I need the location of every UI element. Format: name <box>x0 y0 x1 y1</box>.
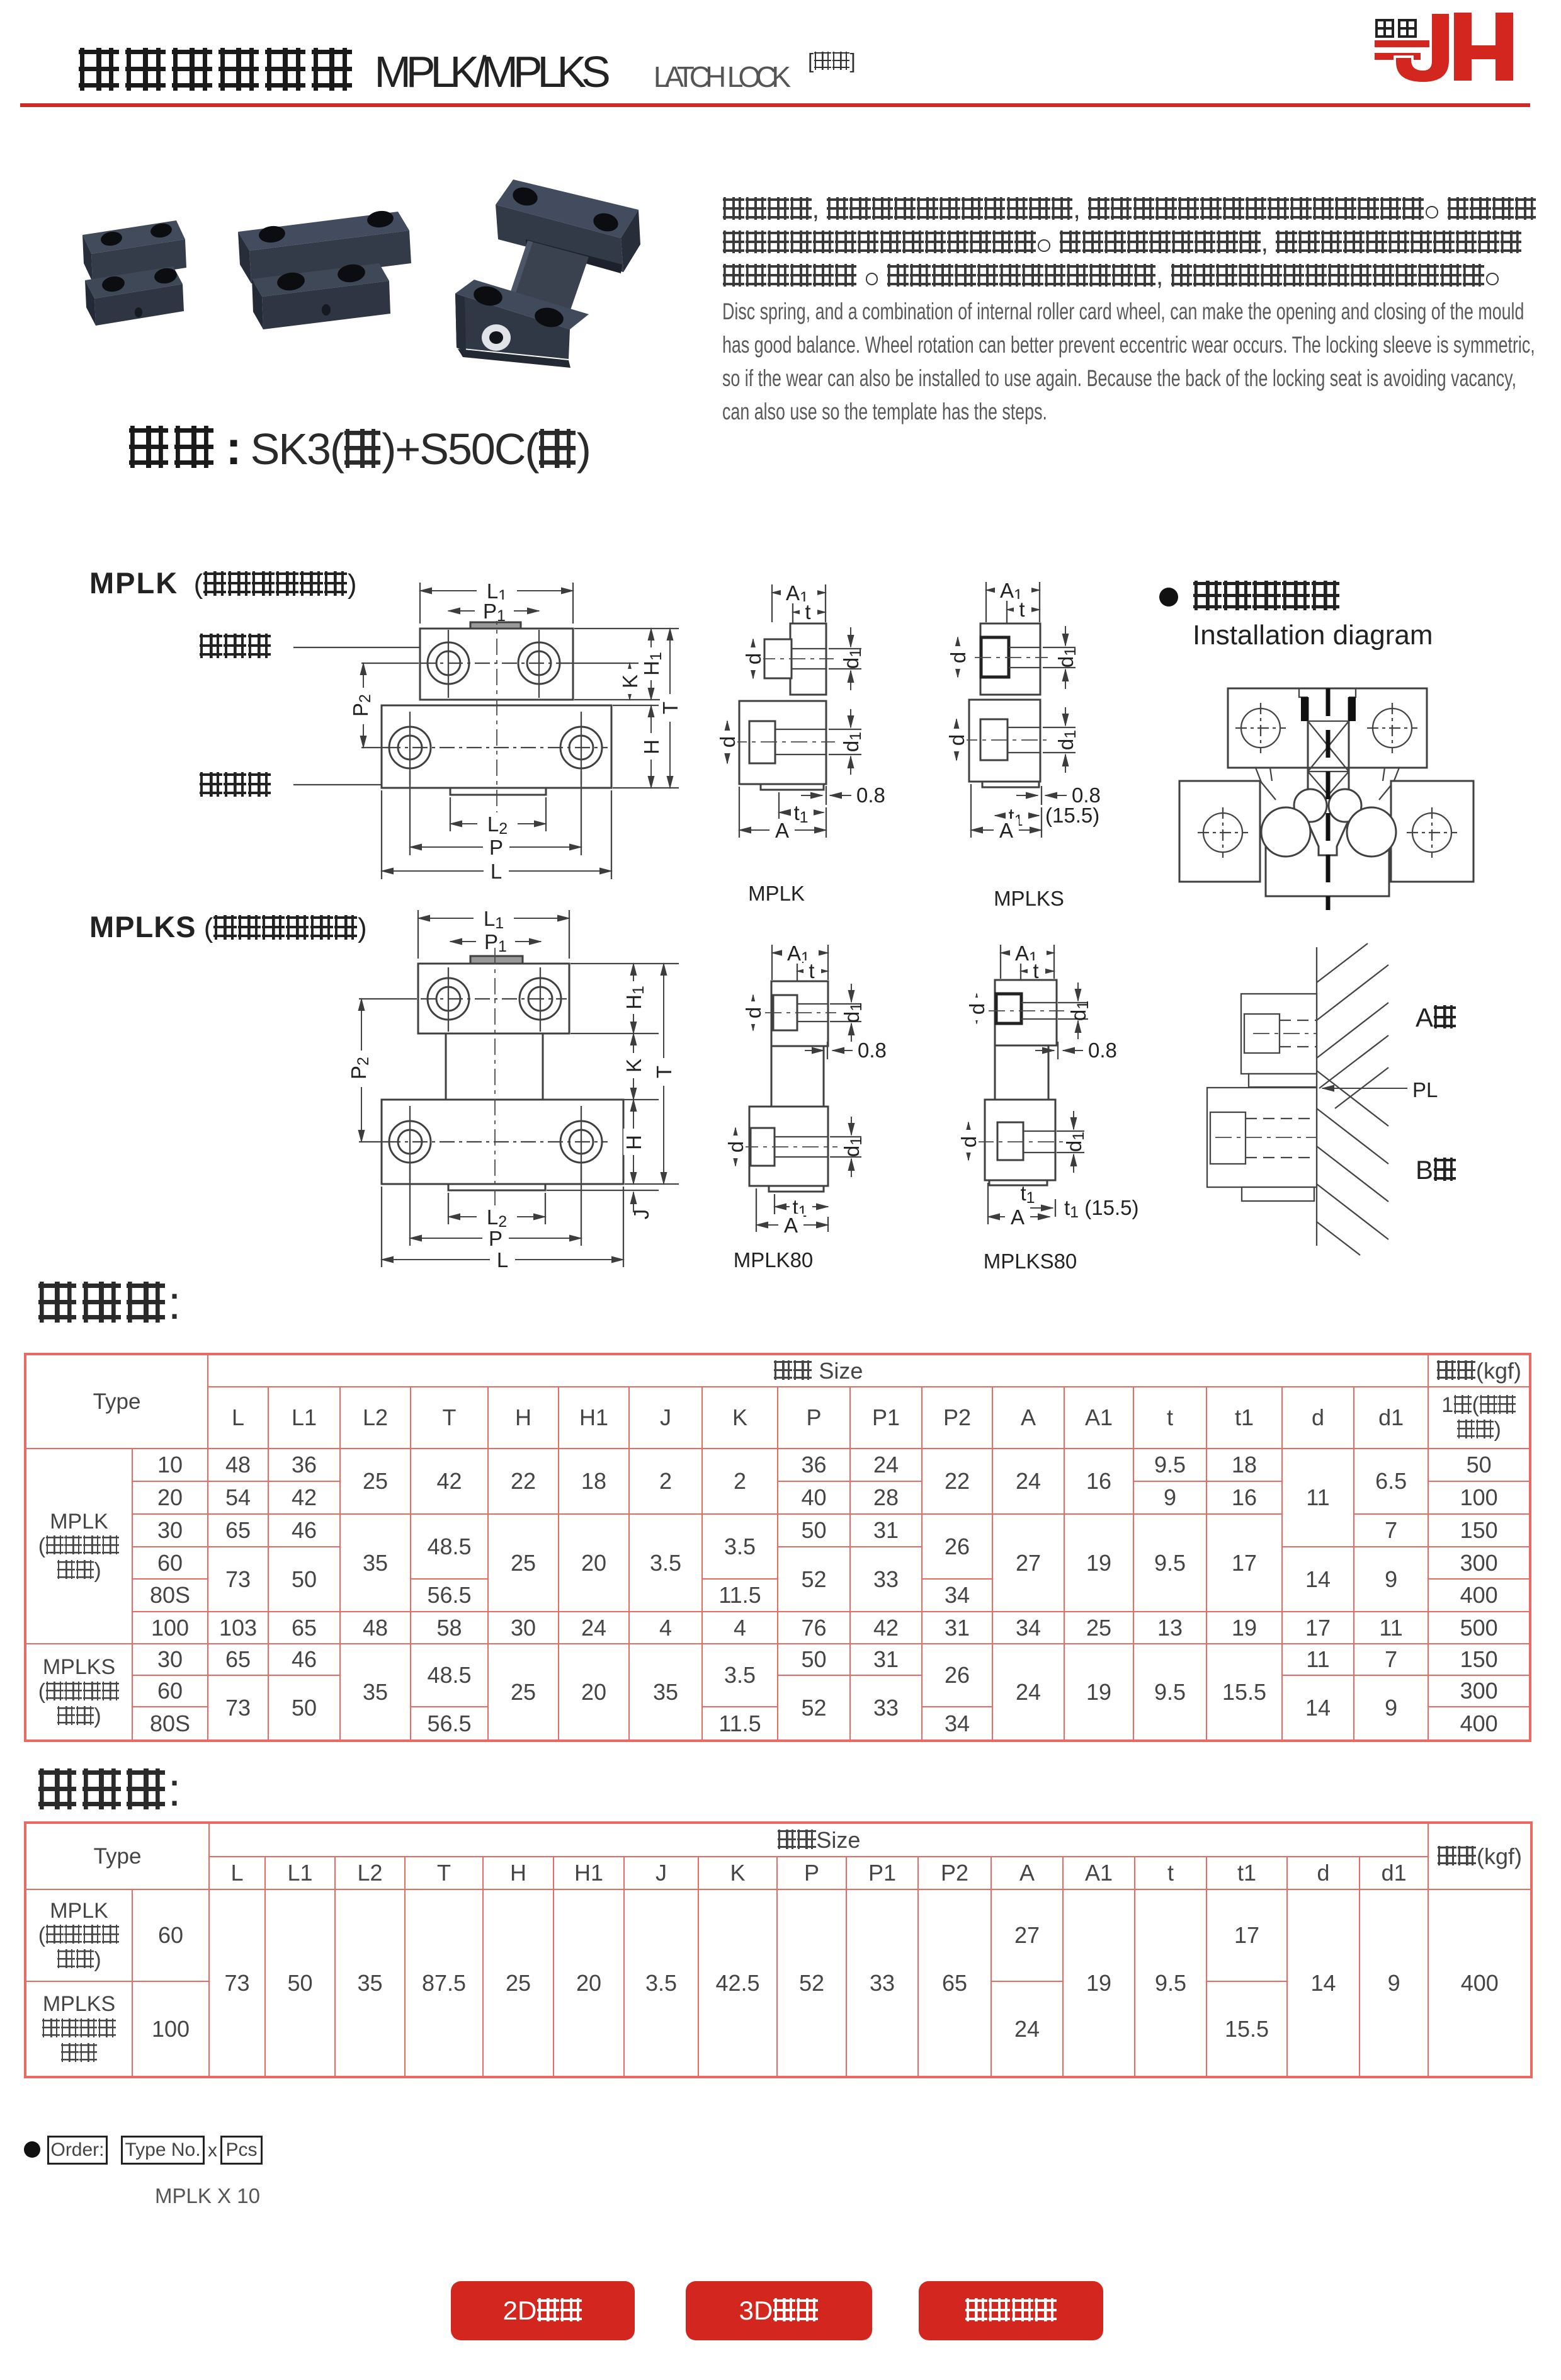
svg-text:d: d <box>716 736 739 748</box>
svg-text:P: P <box>489 1227 502 1250</box>
svg-text:0.8: 0.8 <box>856 783 885 807</box>
svg-text:A: A <box>775 819 789 842</box>
svg-text:T: T <box>659 702 682 714</box>
svg-text:P: P <box>489 836 503 859</box>
svg-text:PL: PL <box>1412 1078 1438 1102</box>
svg-text:MPLK: MPLK <box>748 882 805 905</box>
svg-text:d: d <box>724 1141 747 1153</box>
svg-text:MPLKS80: MPLKS80 <box>984 1250 1077 1273</box>
svg-text:MPLK80: MPLK80 <box>734 1248 814 1272</box>
svg-text:K: K <box>618 675 642 688</box>
svg-text:t: t <box>809 959 814 982</box>
svg-text:d: d <box>742 653 765 664</box>
svg-text:t1 (15.5): t1 (15.5) <box>1064 1196 1138 1221</box>
svg-text:t: t <box>1033 959 1038 982</box>
svg-text:d1: d1 <box>1054 730 1079 750</box>
svg-text:t: t <box>1019 598 1025 621</box>
svg-text:t: t <box>805 600 810 623</box>
svg-text:A: A <box>999 819 1013 842</box>
svg-text:d1: d1 <box>840 1137 865 1157</box>
svg-text:d1: d1 <box>1067 1001 1092 1021</box>
svg-text:d: d <box>957 1136 980 1147</box>
svg-text:T: T <box>652 1066 676 1078</box>
svg-text:MPLKS: MPLKS <box>994 887 1064 910</box>
svg-text:d: d <box>946 652 970 663</box>
svg-text:(15.5): (15.5) <box>1045 804 1099 827</box>
svg-text:d1: d1 <box>840 1003 865 1023</box>
svg-text:d: d <box>742 1007 765 1018</box>
svg-text:d: d <box>965 1003 989 1015</box>
svg-text:d1: d1 <box>1062 1132 1087 1152</box>
svg-text:A: A <box>784 1214 798 1237</box>
svg-text:K: K <box>622 1059 645 1073</box>
svg-text:d1: d1 <box>1054 647 1079 668</box>
svg-text:d1: d1 <box>839 649 865 669</box>
svg-text:H: H <box>622 1135 645 1150</box>
svg-text:H: H <box>640 739 663 754</box>
svg-text:A: A <box>1011 1205 1025 1229</box>
svg-text:d1: d1 <box>839 732 865 752</box>
svg-text:0.8: 0.8 <box>1088 1039 1117 1062</box>
svg-text:J: J <box>630 1209 653 1220</box>
svg-text:L: L <box>491 860 502 883</box>
svg-text:0.8: 0.8 <box>858 1039 887 1062</box>
svg-text:d: d <box>945 734 968 746</box>
svg-text:L: L <box>497 1248 508 1272</box>
